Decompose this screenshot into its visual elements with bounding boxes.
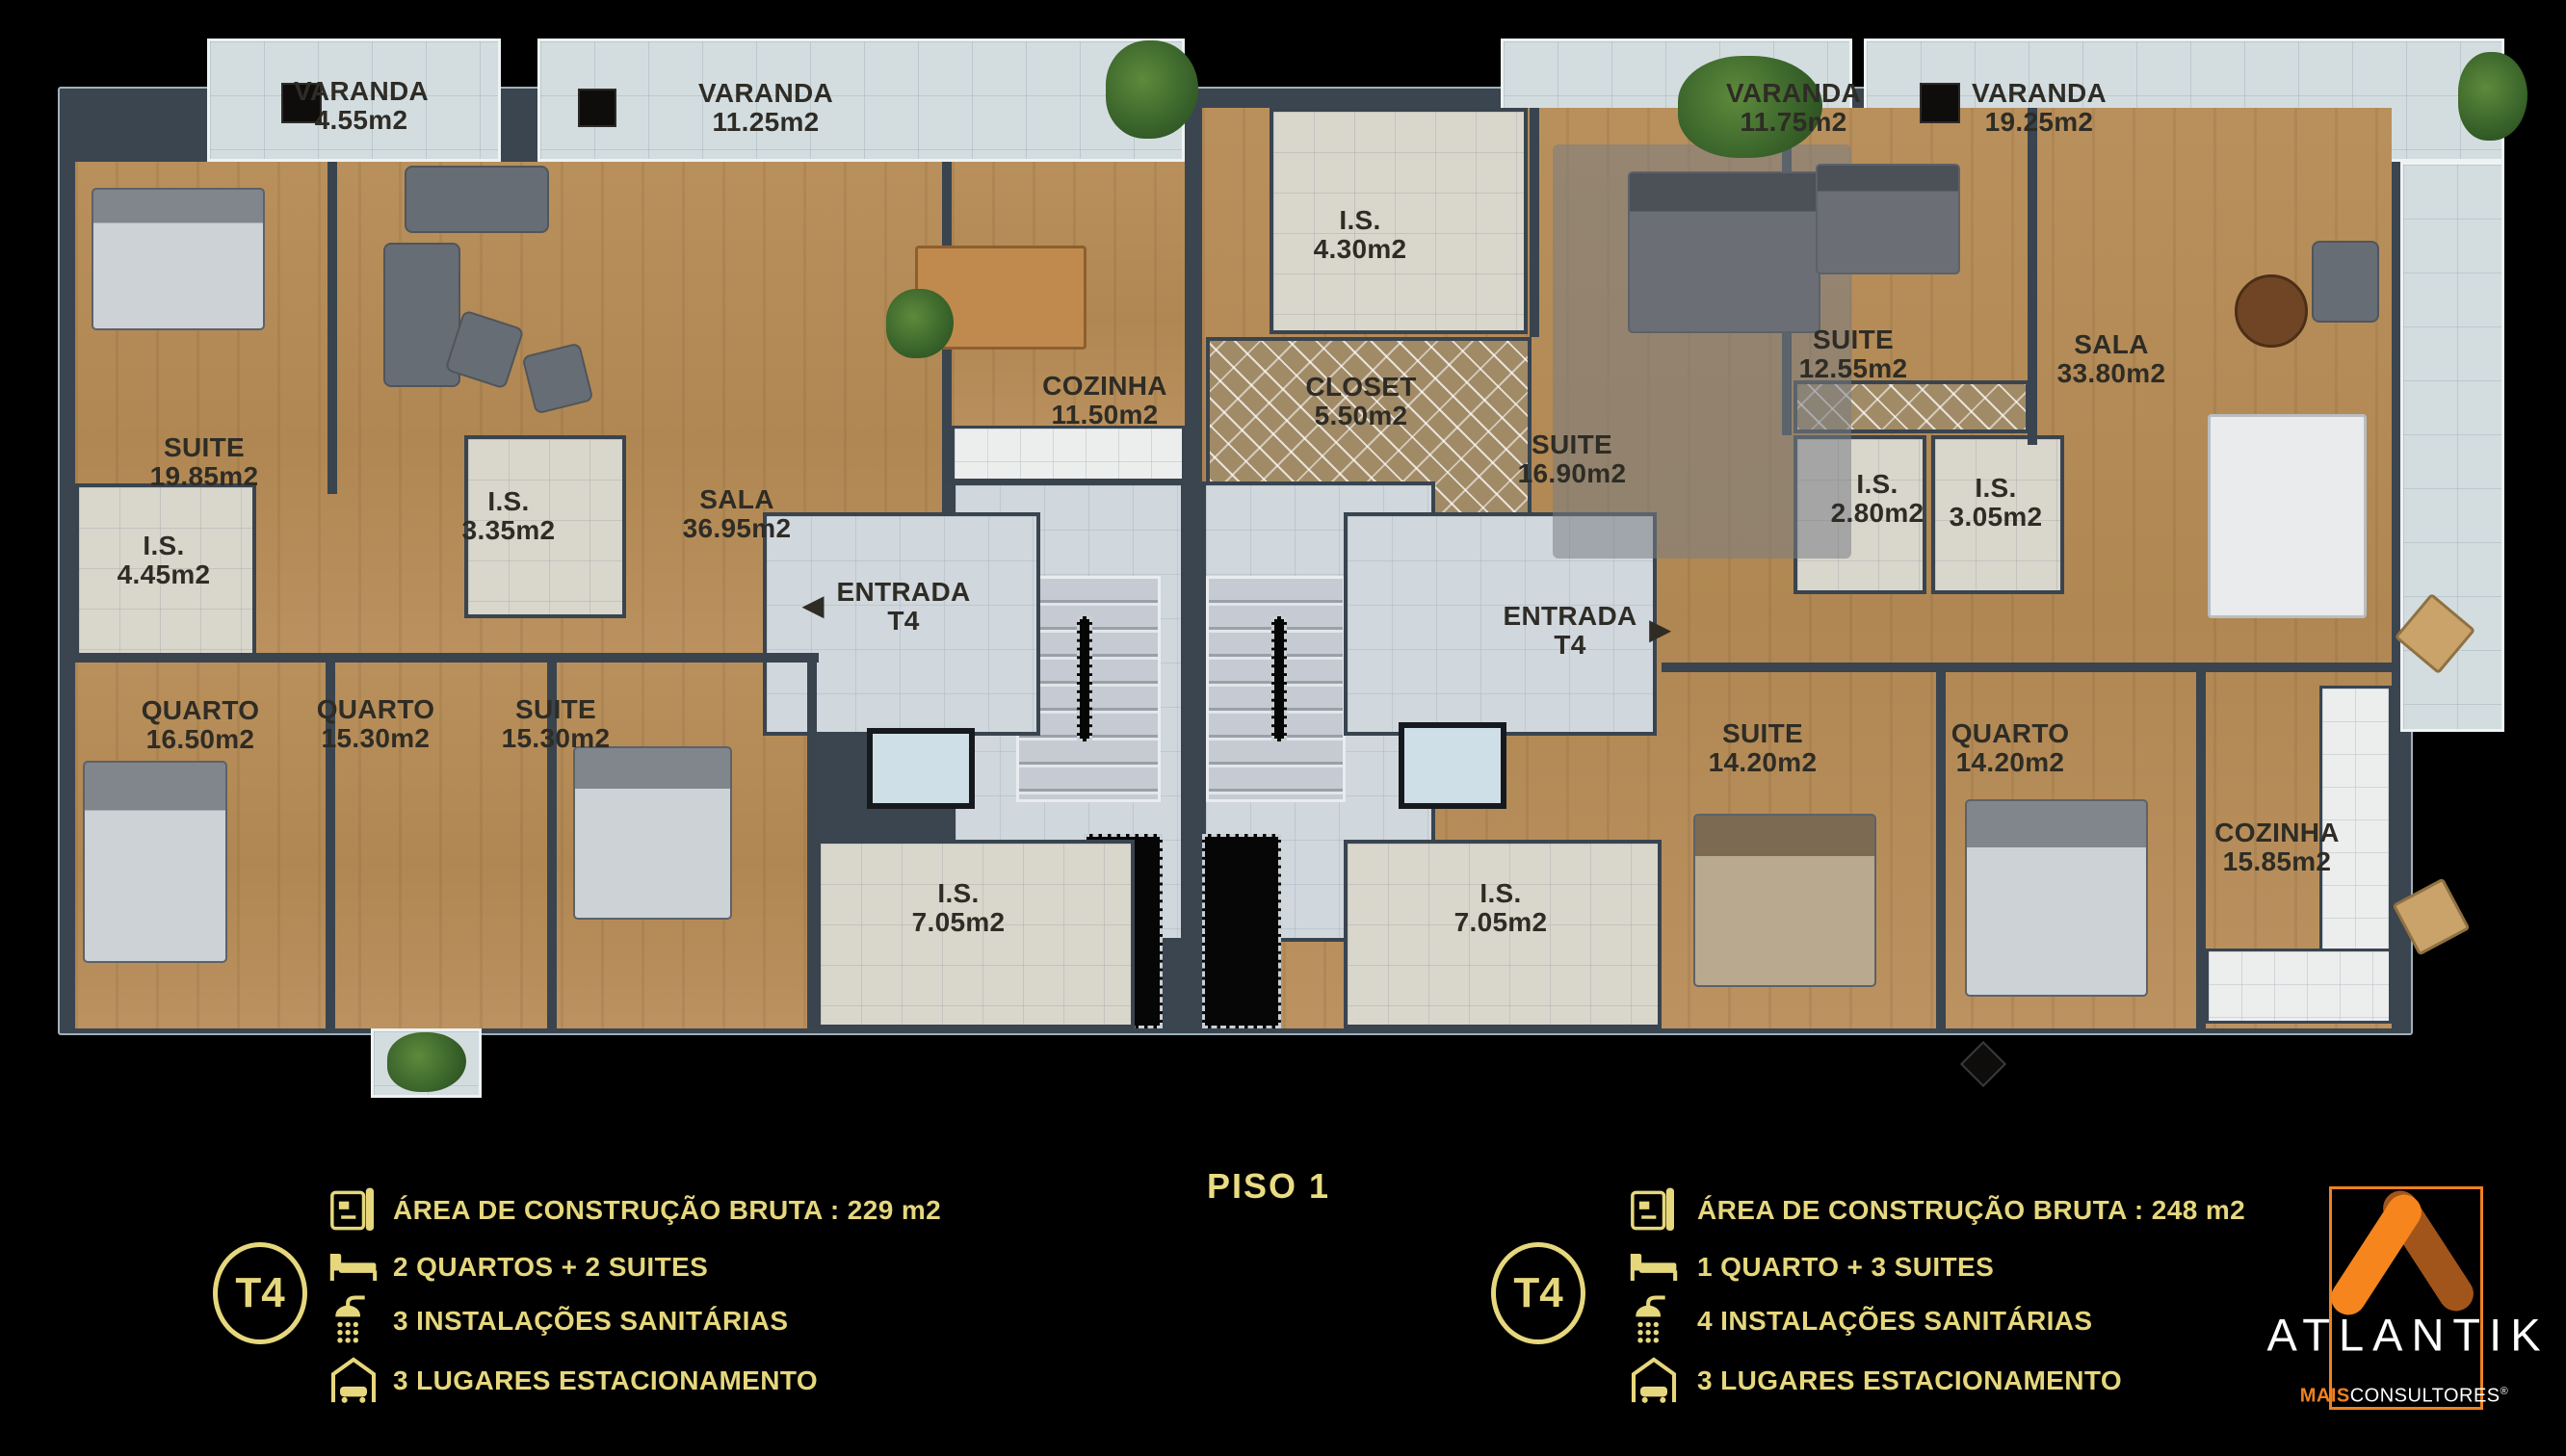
label-line: 14.20m2: [1709, 748, 1818, 777]
label-line: 19.25m2: [1972, 108, 2107, 137]
label-line: 15.30m2: [502, 724, 611, 753]
label-line: 3.35m2: [462, 516, 556, 545]
zone-white: [952, 426, 1185, 481]
is-280-label: I.S.2.80m2: [1831, 470, 1924, 528]
legend-row-text: 1 QUARTO + 3 SUITES: [1697, 1252, 1994, 1283]
unit-type-badge: T4: [213, 1242, 307, 1344]
brand-tagline: MAISCONSULTORES®: [2300, 1386, 2509, 1408]
suite-1690-label: SUITE16.90m2: [1518, 430, 1627, 488]
legend-row-text: 3 LUGARES ESTACIONAMENTO: [393, 1365, 818, 1396]
unit-type-badge: T4: [1491, 1242, 1585, 1344]
zone-wall: [2196, 672, 2206, 1028]
label-line: 15.85m2: [2214, 847, 2340, 876]
is-445-label: I.S.4.45m2: [118, 532, 211, 589]
legend-row-text: 3 INSTALAÇÕES SANITÁRIAS: [393, 1306, 788, 1337]
zone-void: [1271, 616, 1287, 741]
fire-pit: [1920, 83, 1960, 123]
label-line: I.S.: [118, 532, 211, 560]
zone-void: [1202, 834, 1281, 1028]
floorplan-marketing-page: VARANDA4.55m2VARANDA11.25m2VARANDA11.75m…: [0, 0, 2566, 1456]
compass-cube-icon: [1960, 1041, 2006, 1087]
label-line: COZINHA: [2214, 819, 2340, 847]
bed: [92, 188, 265, 330]
label-line: 4.30m2: [1314, 235, 1407, 264]
legend-row-text: 3 LUGARES ESTACIONAMENTO: [1697, 1365, 2122, 1396]
elevator: [1399, 722, 1506, 809]
quarto-1420-label: QUARTO14.20m2: [1951, 719, 2070, 777]
varanda-1-label: VARANDA4.55m2: [294, 77, 429, 135]
label-line: SUITE: [1709, 719, 1818, 748]
label-line: SUITE: [150, 433, 259, 462]
garage-icon: [1627, 1354, 1681, 1408]
zone-balcony: [537, 39, 1185, 162]
label-line: QUARTO: [1951, 719, 2070, 748]
suite-1985-label: SUITE19.85m2: [150, 433, 259, 491]
varanda-4-label: VARANDA19.25m2: [1972, 79, 2107, 137]
bed-icon: [1627, 1240, 1681, 1294]
label-line: I.S.: [912, 879, 1006, 908]
quarto-1650-label: QUARTO16.50m2: [142, 696, 260, 754]
label-line: 4.55m2: [294, 106, 429, 135]
zone-wall: [807, 663, 817, 1028]
zone-wall: [1662, 663, 2394, 672]
label-line: 16.90m2: [1518, 459, 1627, 488]
sala-3695-label: SALA36.95m2: [683, 485, 792, 543]
label-line: 2.80m2: [1831, 499, 1924, 528]
cozinha-1150-label: COZINHA11.50m2: [1042, 372, 1167, 429]
label-line: 19.85m2: [150, 462, 259, 491]
label-line: 14.20m2: [1951, 748, 2070, 777]
bed: [83, 761, 227, 963]
label-line: T4: [1504, 631, 1637, 660]
zone-wall: [2028, 108, 2037, 445]
shower-icon: [327, 1294, 380, 1348]
bed: [1628, 171, 1820, 333]
is-335-label: I.S.3.35m2: [462, 487, 556, 545]
label-line: I.S.: [1950, 474, 2043, 503]
label-line: 11.50m2: [1042, 401, 1167, 429]
label-line: 11.25m2: [698, 108, 833, 137]
quarto-1530-label: QUARTO15.30m2: [317, 695, 435, 753]
tagline-bold: MAIS: [2300, 1386, 2350, 1407]
is-705-right-label: I.S.7.05m2: [1454, 879, 1548, 937]
legend-row-text: ÁREA DE CONSTRUÇÃO BRUTA : 248 m2: [1697, 1195, 2245, 1226]
label-line: ENTRADA: [1504, 602, 1637, 631]
label-line: T4: [837, 607, 971, 636]
legend-row-text: ÁREA DE CONSTRUÇÃO BRUTA : 229 m2: [393, 1195, 941, 1226]
label-line: 33.80m2: [2057, 359, 2166, 388]
dining-table: [2208, 414, 2367, 618]
label-line: 7.05m2: [1454, 908, 1548, 937]
floorplan-icon: [1627, 1183, 1681, 1237]
label-line: I.S.: [1831, 470, 1924, 499]
label-line: 4.45m2: [118, 560, 211, 589]
floor-title: PISO 1: [1207, 1166, 1330, 1207]
varanda-3-label: VARANDA11.75m2: [1726, 79, 1861, 137]
suite-1255-label: SUITE12.55m2: [1799, 325, 1908, 383]
legend-row-text: 4 INSTALAÇÕES SANITÁRIAS: [1697, 1306, 2092, 1337]
label-line: VARANDA: [698, 79, 833, 108]
brand-name: ATLANTIK: [2266, 1309, 2549, 1362]
is-430-label: I.S.4.30m2: [1314, 206, 1407, 264]
tagline-rest: CONSULTORES: [2350, 1386, 2501, 1407]
registered-mark: ®: [2501, 1386, 2509, 1397]
is-705-left-label: I.S.7.05m2: [912, 879, 1006, 937]
garage-icon: [327, 1354, 380, 1408]
zone-void: [1077, 616, 1092, 741]
label-line: SALA: [2057, 330, 2166, 359]
entrance-arrow-icon: ▶: [1649, 615, 1671, 646]
bed: [1965, 799, 2148, 997]
label-line: SUITE: [1518, 430, 1627, 459]
round-table: [2235, 274, 2308, 348]
label-line: 5.50m2: [1305, 402, 1416, 430]
entrada-t4-right-label: ENTRADAT4▶: [1504, 602, 1637, 660]
label-line: 3.05m2: [1950, 503, 2043, 532]
label-line: 15.30m2: [317, 724, 435, 753]
bed: [1816, 164, 1960, 274]
label-line: I.S.: [462, 487, 556, 516]
label-line: I.S.: [1314, 206, 1407, 235]
elevator: [867, 728, 975, 809]
varanda-2-label: VARANDA11.25m2: [698, 79, 833, 137]
label-line: VARANDA: [1972, 79, 2107, 108]
label-line: 16.50m2: [142, 725, 260, 754]
label-line: VARANDA: [1726, 79, 1861, 108]
label-line: 7.05m2: [912, 908, 1006, 937]
label-line: COZINHA: [1042, 372, 1167, 401]
armchair: [2312, 241, 2379, 323]
entrada-t4-left-label: ENTRADAT4◀: [837, 578, 971, 636]
label-line: ENTRADA: [837, 578, 971, 607]
sala-3380-label: SALA33.80m2: [2057, 330, 2166, 388]
label-line: QUARTO: [317, 695, 435, 724]
closet-550-label: CLOSET5.50m2: [1305, 373, 1416, 430]
zone-white: [2206, 949, 2392, 1024]
shower-icon: [1627, 1294, 1681, 1348]
suite-1530-label: SUITE15.30m2: [502, 695, 611, 753]
cozinha-1585-label: COZINHA15.85m2: [2214, 819, 2340, 876]
zone-wall: [327, 162, 337, 494]
entrance-arrow-icon: ◀: [802, 591, 825, 622]
floorplan-icon: [327, 1183, 380, 1237]
bed: [1693, 814, 1876, 987]
legend-row-text: 2 QUARTOS + 2 SUITES: [393, 1252, 708, 1283]
label-line: 36.95m2: [683, 514, 792, 543]
label-line: VARANDA: [294, 77, 429, 106]
bed: [573, 746, 732, 920]
bed-icon: [327, 1240, 380, 1294]
fire-pit: [578, 89, 616, 127]
sofa: [405, 166, 549, 233]
is-305-label: I.S.3.05m2: [1950, 474, 2043, 532]
zone-wall: [75, 653, 819, 663]
label-line: QUARTO: [142, 696, 260, 725]
label-line: CLOSET: [1305, 373, 1416, 402]
label-line: I.S.: [1454, 879, 1548, 908]
zone-wall: [1936, 672, 1946, 1028]
label-line: SUITE: [1799, 325, 1908, 354]
plant: [2458, 52, 2527, 141]
label-line: 12.55m2: [1799, 354, 1908, 383]
label-line: 11.75m2: [1726, 108, 1861, 137]
label-line: SUITE: [502, 695, 611, 724]
suite-1420-label: SUITE14.20m2: [1709, 719, 1818, 777]
label-line: SALA: [683, 485, 792, 514]
zone-wall: [1530, 108, 1539, 337]
